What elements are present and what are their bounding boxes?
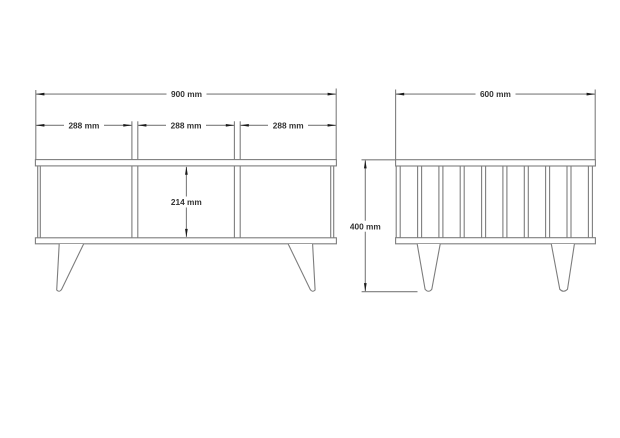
- svg-text:600 mm: 600 mm: [480, 89, 511, 99]
- svg-text:288 mm: 288 mm: [68, 120, 99, 130]
- svg-text:288 mm: 288 mm: [171, 120, 202, 130]
- svg-text:288 mm: 288 mm: [273, 120, 304, 130]
- svg-text:900 mm: 900 mm: [171, 89, 202, 99]
- svg-text:214 mm: 214 mm: [171, 197, 202, 207]
- svg-text:400 mm: 400 mm: [350, 221, 381, 231]
